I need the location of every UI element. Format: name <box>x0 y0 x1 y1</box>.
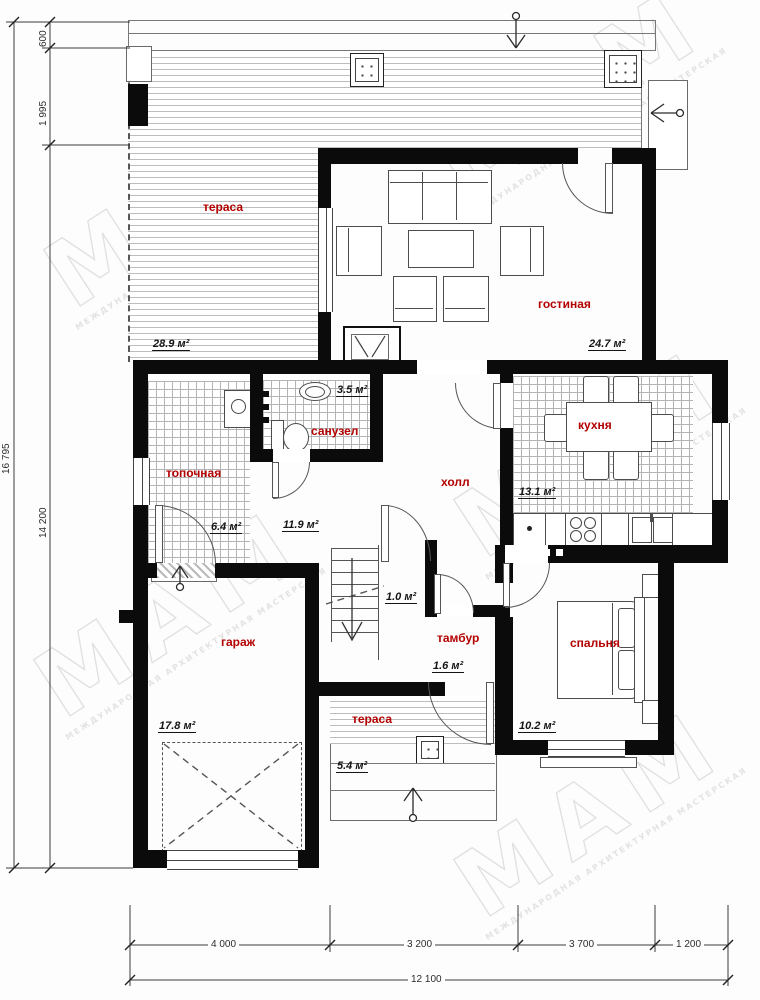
dim-14200: 14 200 <box>38 476 49 538</box>
dining-chair <box>583 450 609 480</box>
wall <box>298 850 318 868</box>
garage-area: 17.8 м² <box>158 720 196 733</box>
dim-1995: 1 995 <box>38 70 49 126</box>
hall-area: 11.9 м² <box>282 519 319 532</box>
bedroom-label: спальня <box>570 636 620 650</box>
wall <box>133 374 148 868</box>
hall-label: холл <box>441 475 470 489</box>
shaft-mark <box>263 417 269 423</box>
stairs <box>331 548 379 642</box>
dim-3700: 3 700 <box>566 939 597 950</box>
shaft-mark <box>253 404 259 410</box>
armchair-line <box>348 228 349 272</box>
counter-divider <box>565 513 566 545</box>
dim-16795: 16 795 <box>1 412 12 474</box>
roof-edge <box>655 20 656 51</box>
kitchen-label: кухня <box>578 418 612 432</box>
boiler-dial <box>231 399 246 414</box>
wall <box>318 148 578 164</box>
dining-chair <box>650 414 674 442</box>
wall <box>133 360 417 374</box>
corner-post <box>126 46 152 82</box>
living-room-label: гостиная <box>538 297 591 311</box>
bedroom-door-opening <box>505 545 548 563</box>
door-leaf <box>272 462 279 498</box>
wall <box>642 148 656 362</box>
coffee-table <box>408 230 474 268</box>
wall <box>305 563 319 868</box>
armchair-line <box>530 228 531 272</box>
wall-vent <box>543 549 550 556</box>
nightstand <box>642 700 659 724</box>
nightstand <box>642 574 659 598</box>
armchair <box>500 226 544 276</box>
terrace-edge-line <box>128 50 656 51</box>
wall <box>250 449 273 462</box>
counter-divider <box>628 513 629 545</box>
stove-burner <box>584 517 596 529</box>
door-leaf <box>503 563 510 607</box>
bathroom-area: 3.5 м² <box>336 384 368 397</box>
wall <box>318 164 331 208</box>
door-leaf <box>155 505 163 563</box>
dim-12100: 12 100 <box>408 974 445 985</box>
wall-marker <box>119 610 135 623</box>
dining-chair <box>544 414 568 442</box>
dim-4000: 4 000 <box>208 939 239 950</box>
stove-burner <box>570 530 582 542</box>
terrace-bottom-label: тераса <box>352 712 392 726</box>
stairs-edge <box>378 545 379 660</box>
pillow <box>618 608 635 648</box>
living-room-window <box>318 208 333 312</box>
kitchen-area: 13.1 м² <box>518 486 556 499</box>
sink-bowl <box>632 517 652 543</box>
living-room-area: 24.7 м² <box>588 338 626 351</box>
stove-burner <box>570 517 582 529</box>
vestibule-area: 1.6 м² <box>432 660 464 673</box>
dim-1200: 1 200 <box>673 939 704 950</box>
door-arc-vestibule <box>437 574 474 613</box>
door-leaf <box>486 682 494 744</box>
wall <box>658 563 674 755</box>
sink-tap <box>650 514 653 522</box>
roof-line <box>128 33 656 34</box>
door-leaf <box>493 383 501 429</box>
counter-dot <box>527 526 532 531</box>
shaft-mark <box>263 404 269 410</box>
column <box>604 50 642 88</box>
sofa-divider <box>456 172 457 220</box>
boiler-room-window <box>133 458 150 505</box>
wall <box>318 682 445 696</box>
shaft-mark <box>263 391 269 397</box>
terrace-steps <box>330 744 497 821</box>
kitchen-door-opening <box>500 383 513 428</box>
sink-bowl <box>653 517 673 543</box>
shaft-mark <box>253 417 259 423</box>
pouf <box>393 276 437 322</box>
column <box>350 53 384 87</box>
passage-opening <box>417 360 487 374</box>
boiler-door-opening <box>157 563 215 578</box>
terrace-bottom-area: 5.4 м² <box>336 760 368 773</box>
door-leaf <box>381 505 389 562</box>
window-sill <box>540 757 637 768</box>
door-arc-bedroom <box>505 563 550 608</box>
terrace-top-area: 28.9 м² <box>152 338 190 351</box>
pouf <box>443 276 489 322</box>
parking-space <box>162 742 302 852</box>
terrace-top-label: тераса <box>203 200 243 214</box>
terrace-step-line <box>330 790 495 791</box>
floor-plan: МАМ МЕЖДУНАРОДНАЯ АРХИТЕКТУРНАЯ МАСТЕРСК… <box>0 0 760 1000</box>
counter-divider <box>601 513 602 545</box>
garage-door <box>167 850 298 870</box>
boiler-room-area: 6.4 м² <box>210 521 242 534</box>
stair-closet-area: 1.0 м² <box>385 591 417 604</box>
bedroom-window <box>548 740 625 757</box>
wall <box>495 617 513 753</box>
armchair <box>336 226 382 276</box>
wall-pier <box>128 84 148 126</box>
wall <box>318 312 331 362</box>
pouf-line <box>395 308 433 309</box>
garage-label: гараж <box>221 635 255 649</box>
boiler-room-label: топочная <box>166 466 221 480</box>
roof-line <box>128 20 656 21</box>
wall <box>133 850 167 868</box>
kitchen-counter <box>513 513 714 547</box>
wall <box>310 449 383 462</box>
washbasin-inner <box>305 386 325 398</box>
bedroom-area: 10.2 м² <box>518 720 556 733</box>
pouf-line <box>445 308 485 309</box>
dining-chair <box>613 450 639 480</box>
vestibule-label: тамбур <box>437 631 479 645</box>
pillow <box>618 650 635 690</box>
dim-600: 600 <box>38 23 49 47</box>
shaft-mark <box>253 391 259 397</box>
wall-vent <box>556 549 563 556</box>
bathroom-door-opening <box>273 449 310 462</box>
sofa-divider <box>422 172 423 220</box>
fireplace-inner <box>351 334 389 360</box>
door-leaf <box>605 163 613 213</box>
wall <box>487 360 728 374</box>
door-leaf <box>434 574 441 614</box>
door-arc-hall <box>384 505 431 561</box>
sofa-back-line <box>390 182 488 183</box>
dim-3200: 3 200 <box>404 939 435 950</box>
counter-divider <box>545 513 546 545</box>
bathroom-label: санузел <box>311 424 358 438</box>
kitchen-window <box>712 423 730 500</box>
stove-burner <box>584 530 596 542</box>
toilet-bowl <box>283 423 309 452</box>
sofa <box>388 170 492 224</box>
headboard <box>634 597 645 703</box>
